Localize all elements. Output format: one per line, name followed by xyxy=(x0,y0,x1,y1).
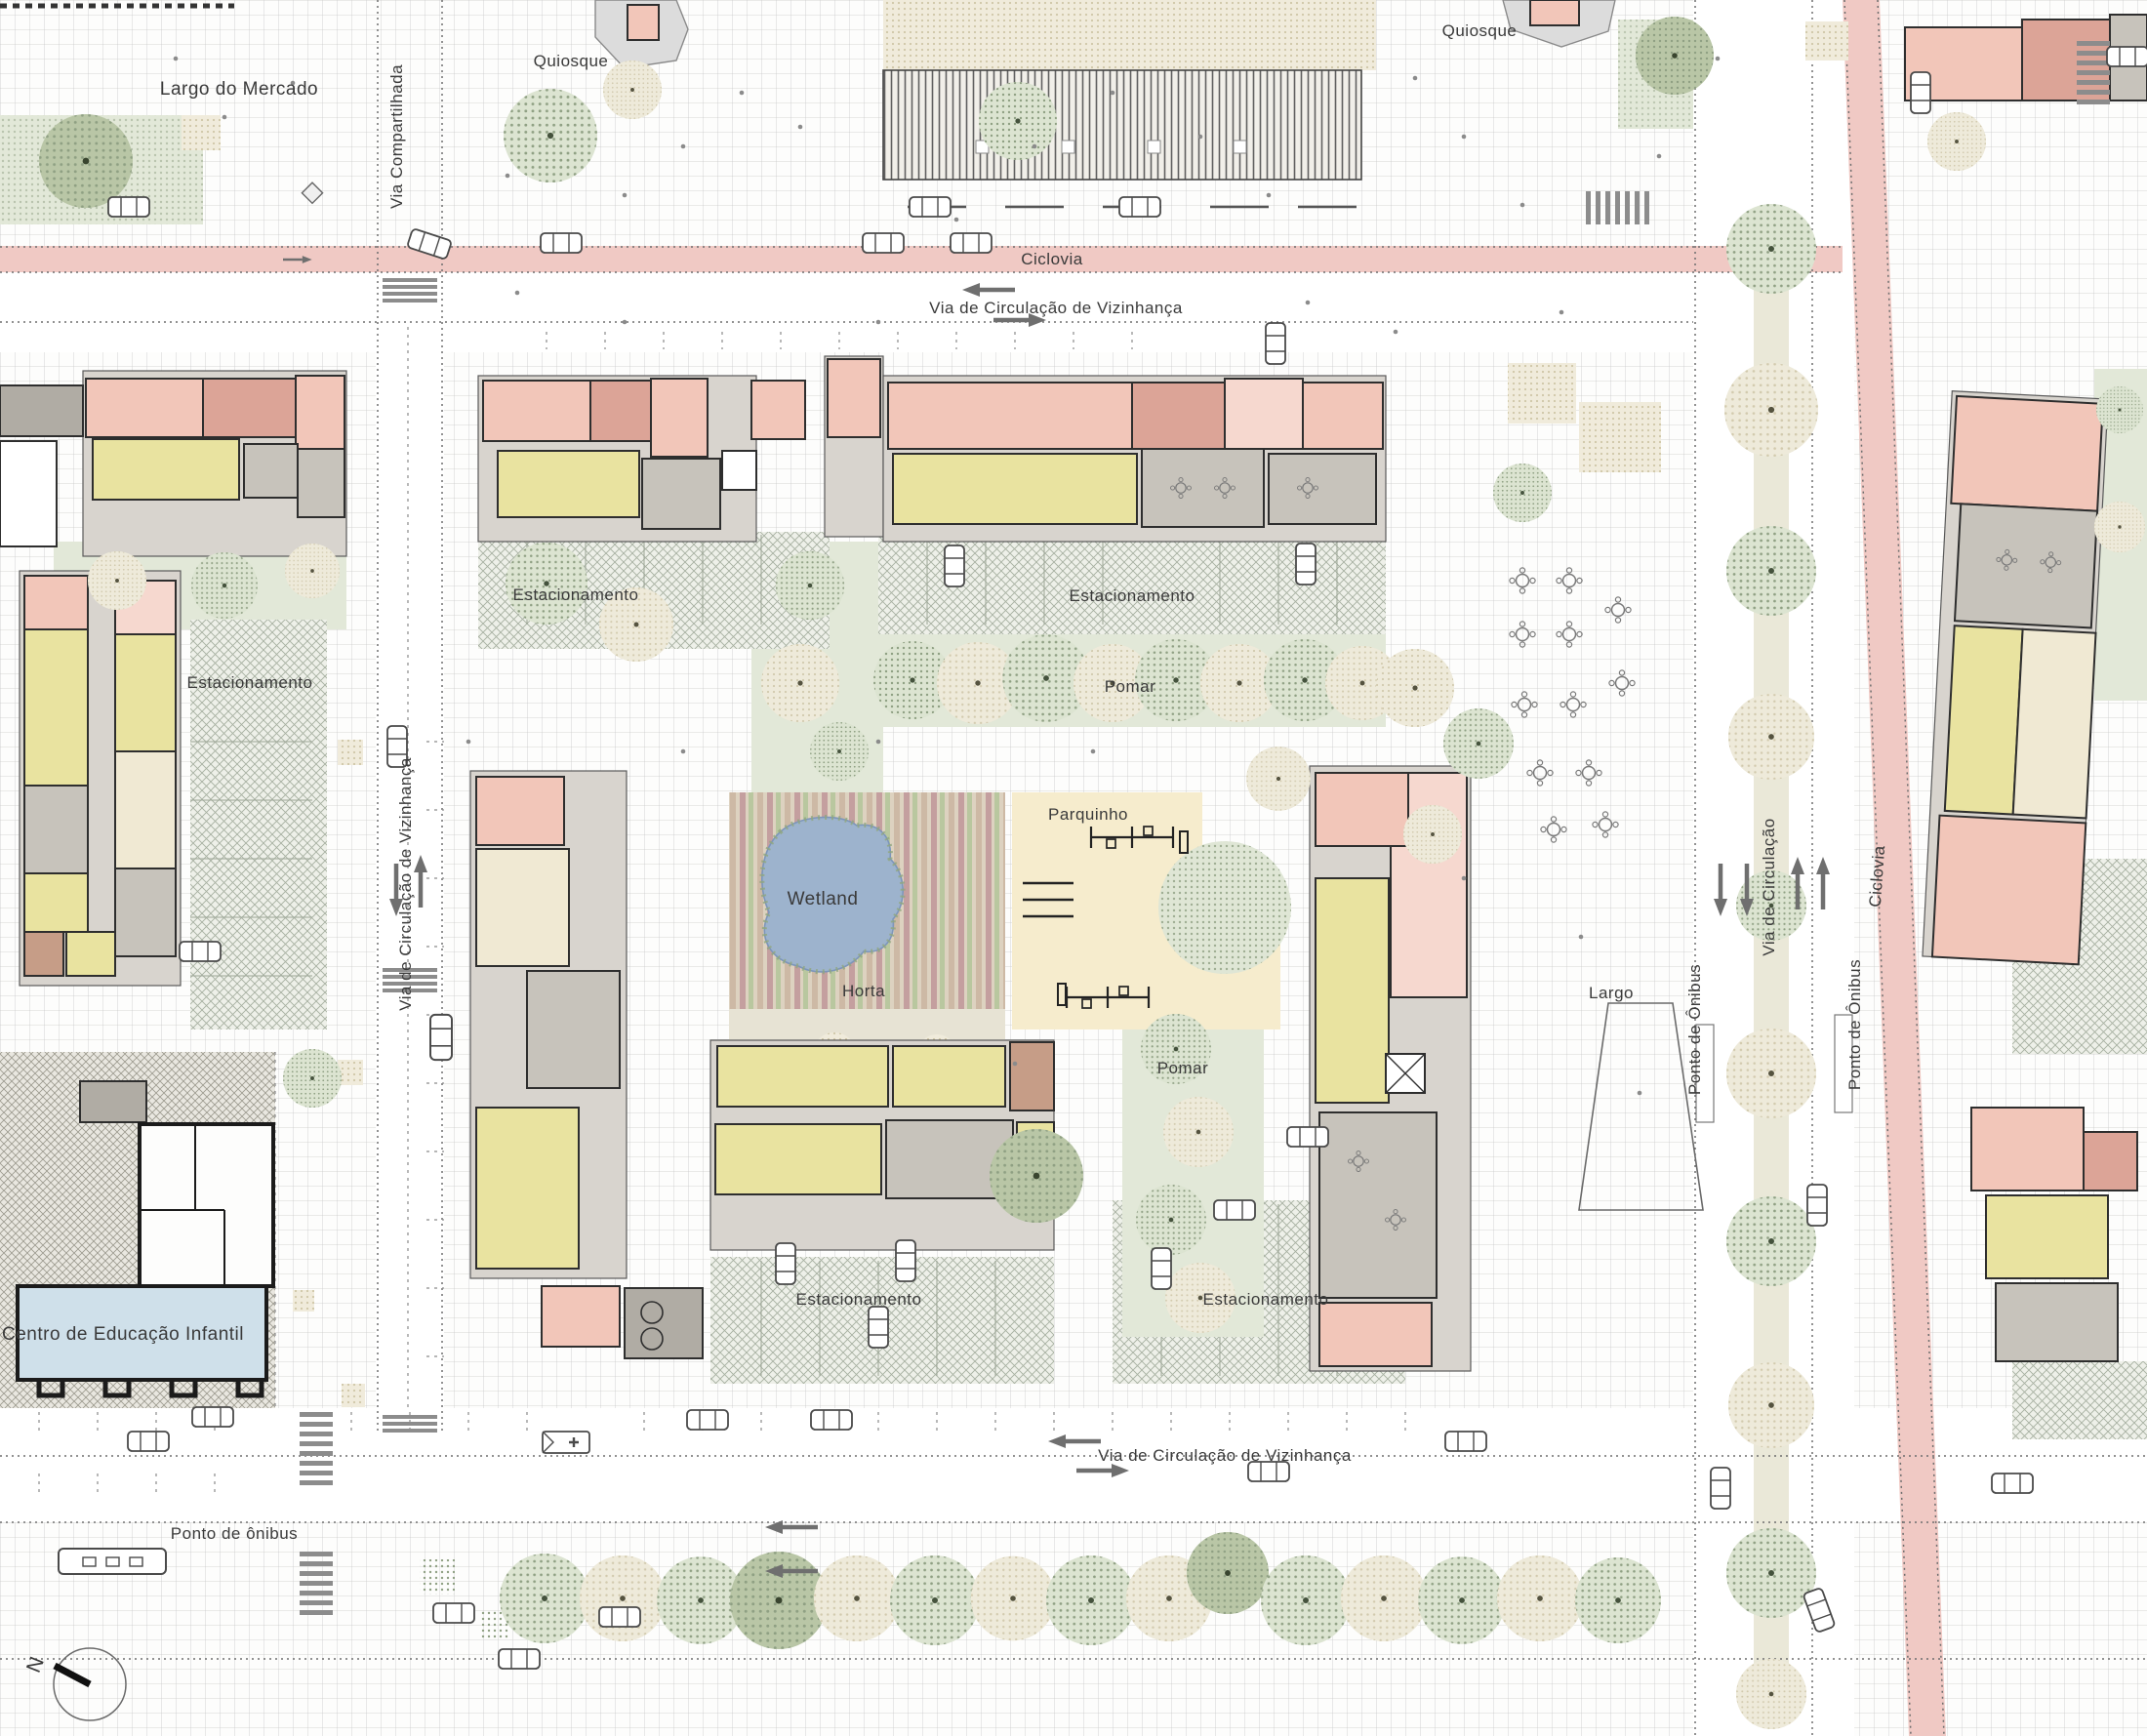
label-quiosque-west: Quiosque xyxy=(534,52,609,71)
label-ponto-onibus-bottom: Ponto de ônibus xyxy=(171,1524,298,1544)
site-plan: Largo do Mercado Via Compartilhada Quios… xyxy=(0,0,2147,1736)
label-centro-educacao: Centro de Educação Infantil xyxy=(2,1324,244,1346)
label-estacionamento-inner-topcenter: Estacionamento xyxy=(1070,586,1195,606)
label-estacionamento-bottom-east: Estacionamento xyxy=(1203,1290,1329,1310)
crosswalk xyxy=(383,1415,437,1433)
tree-planter xyxy=(1805,21,1848,61)
block-east-mid xyxy=(1923,391,2108,965)
label-pomar-top: Pomar xyxy=(1105,677,1156,697)
label-ponto-onibus-right-east: Ponto de Ônibus xyxy=(1845,959,1865,1090)
label-ciclovia-top: Ciclovia xyxy=(1021,250,1083,269)
label-estacionamento-bottom-west: Estacionamento xyxy=(796,1290,922,1310)
playground-tree-dots xyxy=(1158,841,1291,974)
label-via-vizinhanca-top: Via de Circulação de Vizinhança xyxy=(929,299,1183,318)
market-plaza-paving xyxy=(883,0,1376,70)
street-planter xyxy=(338,740,363,765)
ciclovia-top-band xyxy=(0,246,1843,272)
parking-east-low xyxy=(2012,1361,2147,1439)
school-planter xyxy=(293,1290,314,1312)
label-horta: Horta xyxy=(842,982,885,1001)
street-planter xyxy=(342,1384,365,1407)
label-quiosque-east: Quiosque xyxy=(1442,21,1518,41)
label-wetland: Wetland xyxy=(788,889,859,910)
block-inner-topcenter xyxy=(825,356,1386,542)
street-planter xyxy=(338,1060,363,1085)
label-ponto-onibus-right-west: Ponto de Ônibus xyxy=(1685,964,1705,1095)
label-via-vizinhanca-bottom: Via de Circulação de Vizinhança xyxy=(1098,1446,1352,1466)
label-largo-do-mercado: Largo do Mercado xyxy=(160,79,318,101)
largo-planting xyxy=(1579,402,1661,472)
label-parquinho: Parquinho xyxy=(1048,805,1128,825)
avenue-planter xyxy=(420,1559,455,1595)
label-estacionamento-inner-topleft: Estacionamento xyxy=(513,585,639,605)
road-top xyxy=(0,272,1854,352)
block-inner-topleft xyxy=(478,376,805,542)
largo-planting xyxy=(1508,363,1576,424)
label-pomar-center: Pomar xyxy=(1157,1059,1209,1078)
label-via-compartilhada: Via Compartilhada xyxy=(387,64,407,209)
tree-planter xyxy=(182,115,221,150)
label-via-circulacao: Via de Circulação xyxy=(1760,818,1779,955)
label-largo: Largo xyxy=(1589,984,1634,1003)
block-northwest xyxy=(0,371,346,556)
block-west-slabs xyxy=(20,571,181,986)
label-estacionamento-west: Estacionamento xyxy=(187,673,313,693)
label-via-vizinhanca-left: Via de Circulação de Vizinhança xyxy=(396,757,416,1011)
utility-building xyxy=(80,1081,146,1122)
